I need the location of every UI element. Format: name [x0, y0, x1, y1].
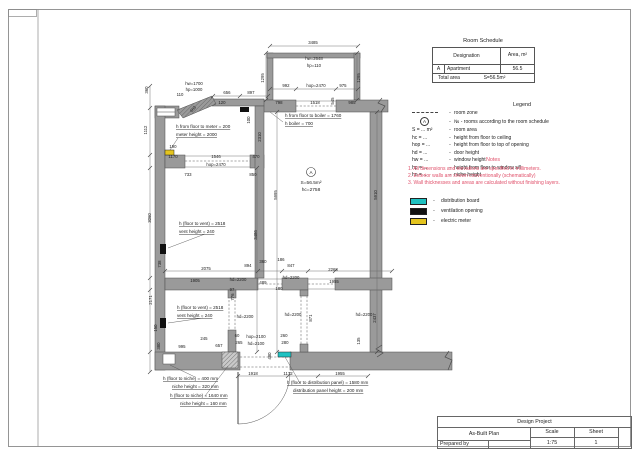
schedule-row-name: Apartment	[445, 64, 501, 73]
distribution-board-icon	[410, 198, 427, 205]
dimension-label: 1170	[168, 154, 178, 159]
annotation-label: vent height = 240	[179, 229, 215, 234]
symbol-label: electric meter	[441, 218, 471, 224]
legend-prefix: hop = ...	[412, 142, 446, 148]
legend-prefix: hd = ...	[412, 150, 446, 156]
room-number-circle-icon: A	[420, 117, 429, 126]
ventilation-opening-icon	[410, 208, 427, 215]
legend-separator: -	[446, 150, 454, 156]
electric-meter-icon	[410, 218, 427, 225]
dimension-label: 975	[339, 83, 347, 88]
dimension-label: 1295	[260, 73, 265, 83]
dimension-label: 186	[277, 257, 285, 262]
legend-prefix: S = ... m²	[412, 127, 446, 133]
legend-separator: -	[446, 135, 454, 141]
symbol-legend-item: -electric meter	[410, 218, 608, 225]
title-block: Design Project As-Built Plan Prepared by…	[437, 416, 632, 449]
dimension-label: 2075	[201, 266, 211, 271]
legend-item-text: room area	[454, 127, 477, 133]
dimension-label: 110	[177, 92, 184, 97]
dimension-label: 3486	[253, 230, 258, 240]
legend-separator: -	[446, 119, 454, 125]
dimension-label: 1918	[248, 371, 258, 376]
dimension-label: 1295	[356, 73, 361, 83]
legend-separator: -	[446, 142, 454, 148]
room-area: S=56.5m²	[301, 180, 322, 186]
legend-item-text: height from floor to top of opening	[454, 142, 529, 148]
dimension-label: 380	[156, 342, 161, 350]
dimension-label: hd=2100	[248, 341, 265, 346]
legend-symbol: A	[412, 117, 446, 126]
dimension-label: 97	[230, 287, 235, 292]
dimension-label: 995	[178, 344, 186, 349]
dimension-label: 1112	[143, 125, 148, 135]
dimension-label: 1955	[335, 371, 345, 376]
dimension-label: 733	[184, 172, 192, 177]
annotation-label: niche height = 160 mm	[180, 401, 227, 406]
symbol-separator: -	[427, 198, 441, 204]
ventilation-opening-symbol	[160, 318, 166, 328]
dimension-label: 798	[275, 100, 283, 105]
annotation-label: vent height = 240	[177, 313, 213, 318]
dimension-label: 135	[356, 337, 361, 345]
dimension-label: 150	[153, 324, 158, 332]
dimension-label: 180	[275, 286, 283, 291]
dimension-label: hop=2470	[306, 83, 326, 88]
dimension-label: 545	[330, 97, 335, 105]
annotation-label: meter height = 2000	[176, 132, 217, 137]
dimension-label: 897	[247, 90, 255, 95]
dimension-label: 100	[246, 116, 251, 124]
notes-section: Notes 1. All dimensions and elevations a…	[408, 157, 578, 188]
legend-prefix: hc = ...	[412, 135, 446, 141]
dimension-label: 5910	[373, 190, 378, 200]
dimension-label: 3485	[308, 40, 318, 45]
dimension-label: hop=2470	[206, 162, 226, 167]
scale-value: 1:75	[530, 437, 575, 448]
room-schedule: Room Schedule Designation Area, m² A Apa…	[432, 38, 534, 83]
annotation-label: h (floor to niche) = 400 mm	[163, 376, 218, 381]
dimension-label: 1905	[190, 278, 200, 283]
annotation-label: h boiler = 700	[285, 121, 313, 126]
dimension-label: 2171	[148, 295, 153, 305]
legend-item-text: № - rooms according to the room schedule	[454, 119, 549, 125]
annotation-label: h (floor to vent) = 2518	[177, 305, 224, 310]
niche-hatched	[222, 352, 238, 368]
annotation-label: niche height = 320 mm	[172, 384, 219, 389]
symbol-rows: -distribution board-ventilation opening-…	[408, 198, 608, 225]
room-schedule-title: Room Schedule	[432, 38, 534, 45]
room-zone-line-icon	[412, 112, 438, 113]
symbol-label: ventilation opening	[441, 208, 483, 214]
dimension-label: 871	[308, 314, 313, 322]
dimension-label: hw=1700	[185, 81, 203, 86]
legend-item: hd = ...-door height	[412, 150, 636, 156]
legend-item-text: door height	[454, 150, 479, 156]
dimension-label: 776	[230, 293, 235, 301]
prepared-by-label: Prepared by	[438, 440, 489, 448]
ventilation-opening-symbol	[160, 244, 166, 254]
notes-rows: 1. All dimensions and elevations are spe…	[408, 166, 578, 187]
window	[157, 108, 175, 116]
dimension-label: 280	[281, 340, 289, 345]
dimension-label: hd=2200	[285, 312, 302, 317]
dimension-label: 1955	[329, 279, 339, 284]
legend-title: Legend	[408, 102, 636, 109]
legend-item: hc = ...-height from floor to ceiling	[412, 135, 636, 141]
dimension-label: 850	[249, 172, 257, 177]
note-item: 3. Wall thicknesses and areas are calcul…	[408, 180, 578, 186]
dimension-label: 480	[267, 352, 272, 360]
drawing-title: As-Built Plan	[438, 427, 531, 441]
note-item: 1. All dimensions and elevations are spe…	[408, 166, 578, 172]
symbol-legend-item: -ventilation opening	[410, 208, 608, 215]
note-item: 2. Exterior walls are shown conventional…	[408, 173, 578, 179]
legend-item: S = ... m²-room area	[412, 127, 636, 133]
room-schedule-table: Designation Area, m² A Apartment 56.5 To…	[432, 47, 535, 84]
schedule-col-designation: Designation	[433, 47, 501, 64]
entrance-door	[238, 372, 290, 424]
room-id: A	[309, 170, 313, 175]
legend-separator: -	[446, 110, 454, 116]
schedule-row-area: 56.5	[501, 64, 535, 73]
symbol-separator: -	[427, 218, 441, 224]
legend-symbol	[412, 110, 446, 116]
annotation-label: h from floor to boiler = 1760	[285, 113, 342, 118]
drawing-sheet: A S=56.5m² hc=2758 3485hw=2648hp=1101295…	[0, 0, 640, 452]
schedule-total: Total area S=56.5m²	[433, 74, 535, 83]
annotation-label: h (floor to vent) = 2518	[179, 221, 226, 226]
notes-title: Notes	[408, 157, 578, 164]
annotation-label: h (floor to distribution panel) = 1580 m…	[287, 380, 368, 385]
dimension-label: 260	[280, 333, 288, 338]
dimension-label: 2310	[257, 132, 262, 142]
sheet-value: 1	[574, 437, 619, 448]
dimension-label: 2268	[328, 267, 338, 272]
dimension-label: hop=2100	[246, 334, 266, 339]
dimension-label: 657	[215, 343, 223, 348]
schedule-total-value: S=56.5m²	[484, 75, 506, 81]
dimension-label: 2437	[372, 313, 377, 323]
dimension-label: 360	[259, 259, 267, 264]
dimension-label: 992	[282, 83, 290, 88]
dimension-label: 656	[223, 90, 231, 95]
diagonal-wall	[177, 96, 216, 118]
dimension-label: 265	[235, 340, 243, 345]
legend-item: hop = ...-height from floor to top of op…	[412, 142, 636, 148]
schedule-row-id: A	[433, 64, 445, 73]
symbol-separator: -	[427, 208, 441, 214]
symbol-legend: -distribution board-ventilation opening-…	[408, 198, 608, 228]
legend-separator: -	[446, 127, 454, 133]
annotation-label: distribution panel height = 200 mm	[293, 388, 364, 393]
symbol-legend-item: -distribution board	[410, 198, 608, 205]
dimension-label: 1546	[211, 154, 221, 159]
dimension-label: 489	[259, 280, 267, 285]
dimension-label: hd=2200	[237, 314, 254, 319]
ventilation-opening-symbol	[240, 107, 249, 112]
legend-item: -room zone	[412, 110, 636, 116]
schedule-col-area: Area, m²	[501, 47, 535, 64]
prepared-by-value	[486, 440, 531, 448]
dimension-label: 190	[169, 144, 177, 149]
dimension-label: 60	[235, 333, 240, 338]
dimension-label: 5995	[273, 190, 278, 200]
dimension-label: 894	[244, 263, 252, 268]
dimension-label: hd=2200	[230, 277, 247, 282]
dimension-label: hw=2648	[305, 56, 323, 61]
dimension-label: 360	[144, 86, 149, 94]
niche	[163, 354, 175, 364]
annotation-label: h from floor to meter = 200	[176, 124, 231, 129]
dimension-label: 1172	[283, 371, 293, 376]
dimension-label: 3060	[147, 213, 152, 223]
room-height: hc=2758	[302, 187, 321, 193]
legend-item-text: height from floor to ceiling	[454, 135, 511, 141]
dimension-label: 120	[218, 100, 226, 105]
dimension-label: hp=110	[307, 63, 322, 68]
dimension-label: 738	[157, 260, 162, 268]
dimension-label: hd=2200	[356, 312, 373, 317]
legend-item: A-№ - rooms according to the room schedu…	[412, 117, 636, 126]
dimension-label: 985	[348, 100, 356, 105]
legend-item-text: room zone	[454, 110, 478, 116]
dimension-label: 1518	[310, 100, 320, 105]
room-label: A S=56.5m² hc=2758	[301, 168, 322, 194]
dimension-label: 245	[200, 336, 208, 341]
schedule-total-label: Total area	[438, 75, 460, 81]
annotation-label: h (floor to niche) = 1640 mm	[170, 393, 228, 398]
dimension-label: hd=2200	[283, 275, 300, 280]
symbol-label: distribution board	[441, 198, 479, 204]
dimension-label: hp=1000	[186, 87, 203, 92]
dimension-label: 847	[287, 263, 295, 268]
dimension-label: 470	[252, 154, 260, 159]
schedule-row: A Apartment 56.5	[433, 64, 535, 73]
distribution-board-symbol	[278, 352, 291, 357]
